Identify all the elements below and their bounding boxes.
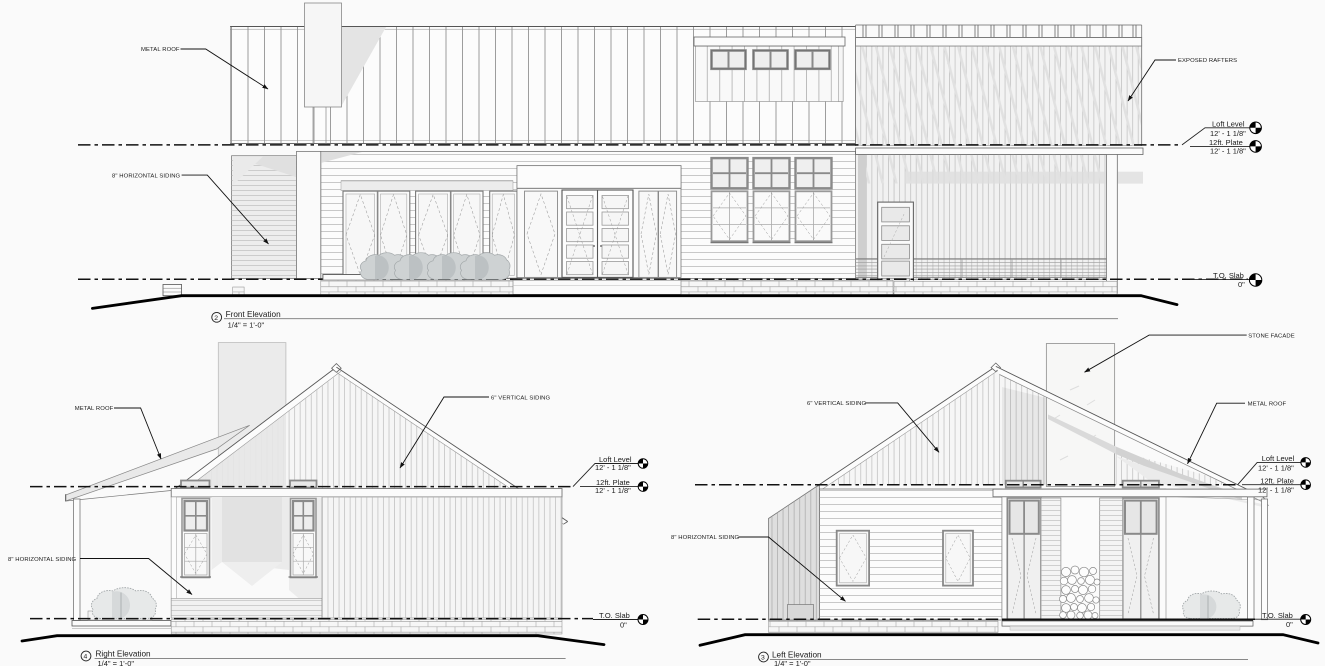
- svg-text:2: 2: [214, 315, 218, 322]
- svg-text:Right Elevation: Right Elevation: [96, 650, 152, 659]
- svg-text:EXPOSED RAFTERS: EXPOSED RAFTERS: [1178, 58, 1237, 64]
- svg-text:12ft. Plate: 12ft. Plate: [1260, 476, 1294, 485]
- svg-text:6" VERTICAL SIDING: 6" VERTICAL SIDING: [807, 401, 867, 407]
- svg-text:8" HORIZONTAL SIDING: 8" HORIZONTAL SIDING: [8, 557, 77, 563]
- svg-text:METAL ROOF: METAL ROOF: [75, 406, 114, 412]
- svg-text:1/4" = 1'-0": 1/4" = 1'-0": [774, 659, 811, 666]
- svg-text:Loft Level: Loft Level: [1212, 119, 1245, 128]
- svg-text:4: 4: [84, 654, 88, 661]
- svg-text:T.O. Slab: T.O. Slab: [599, 611, 630, 620]
- svg-text:Loft Level: Loft Level: [1262, 454, 1295, 463]
- svg-text:0": 0": [1286, 620, 1293, 629]
- svg-text:0": 0": [1238, 280, 1245, 289]
- svg-text:12' - 1 1/8": 12' - 1 1/8": [1258, 486, 1294, 495]
- svg-text:6" VERTICAL SIDING: 6" VERTICAL SIDING: [491, 395, 551, 401]
- svg-text:3: 3: [761, 655, 765, 662]
- svg-text:METAL ROOF: METAL ROOF: [1248, 401, 1287, 407]
- svg-text:12' - 1 1/8": 12' - 1 1/8": [1258, 463, 1294, 472]
- svg-text:12' - 1 1/8": 12' - 1 1/8": [595, 486, 631, 495]
- svg-text:12' - 1 1/8": 12' - 1 1/8": [595, 463, 631, 472]
- svg-text:1/4" = 1'-0": 1/4" = 1'-0": [228, 320, 265, 329]
- svg-text:METAL ROOF: METAL ROOF: [141, 47, 180, 53]
- svg-text:T.O. Slab: T.O. Slab: [1262, 611, 1293, 620]
- svg-text:0": 0": [620, 621, 627, 630]
- svg-text:8" HORIZONTAL SIDING: 8" HORIZONTAL SIDING: [671, 535, 740, 541]
- svg-text:12' - 1 1/8": 12' - 1 1/8": [1210, 129, 1246, 138]
- svg-text:1/4" = 1'-0": 1/4" = 1'-0": [98, 659, 135, 666]
- svg-text:Front Elevation: Front Elevation: [226, 310, 282, 319]
- svg-text:8" HORIZONTAL SIDING: 8" HORIZONTAL SIDING: [112, 173, 181, 179]
- svg-text:STONE FACADE: STONE FACADE: [1248, 334, 1295, 340]
- svg-text:12' - 1 1/8": 12' - 1 1/8": [1210, 147, 1246, 156]
